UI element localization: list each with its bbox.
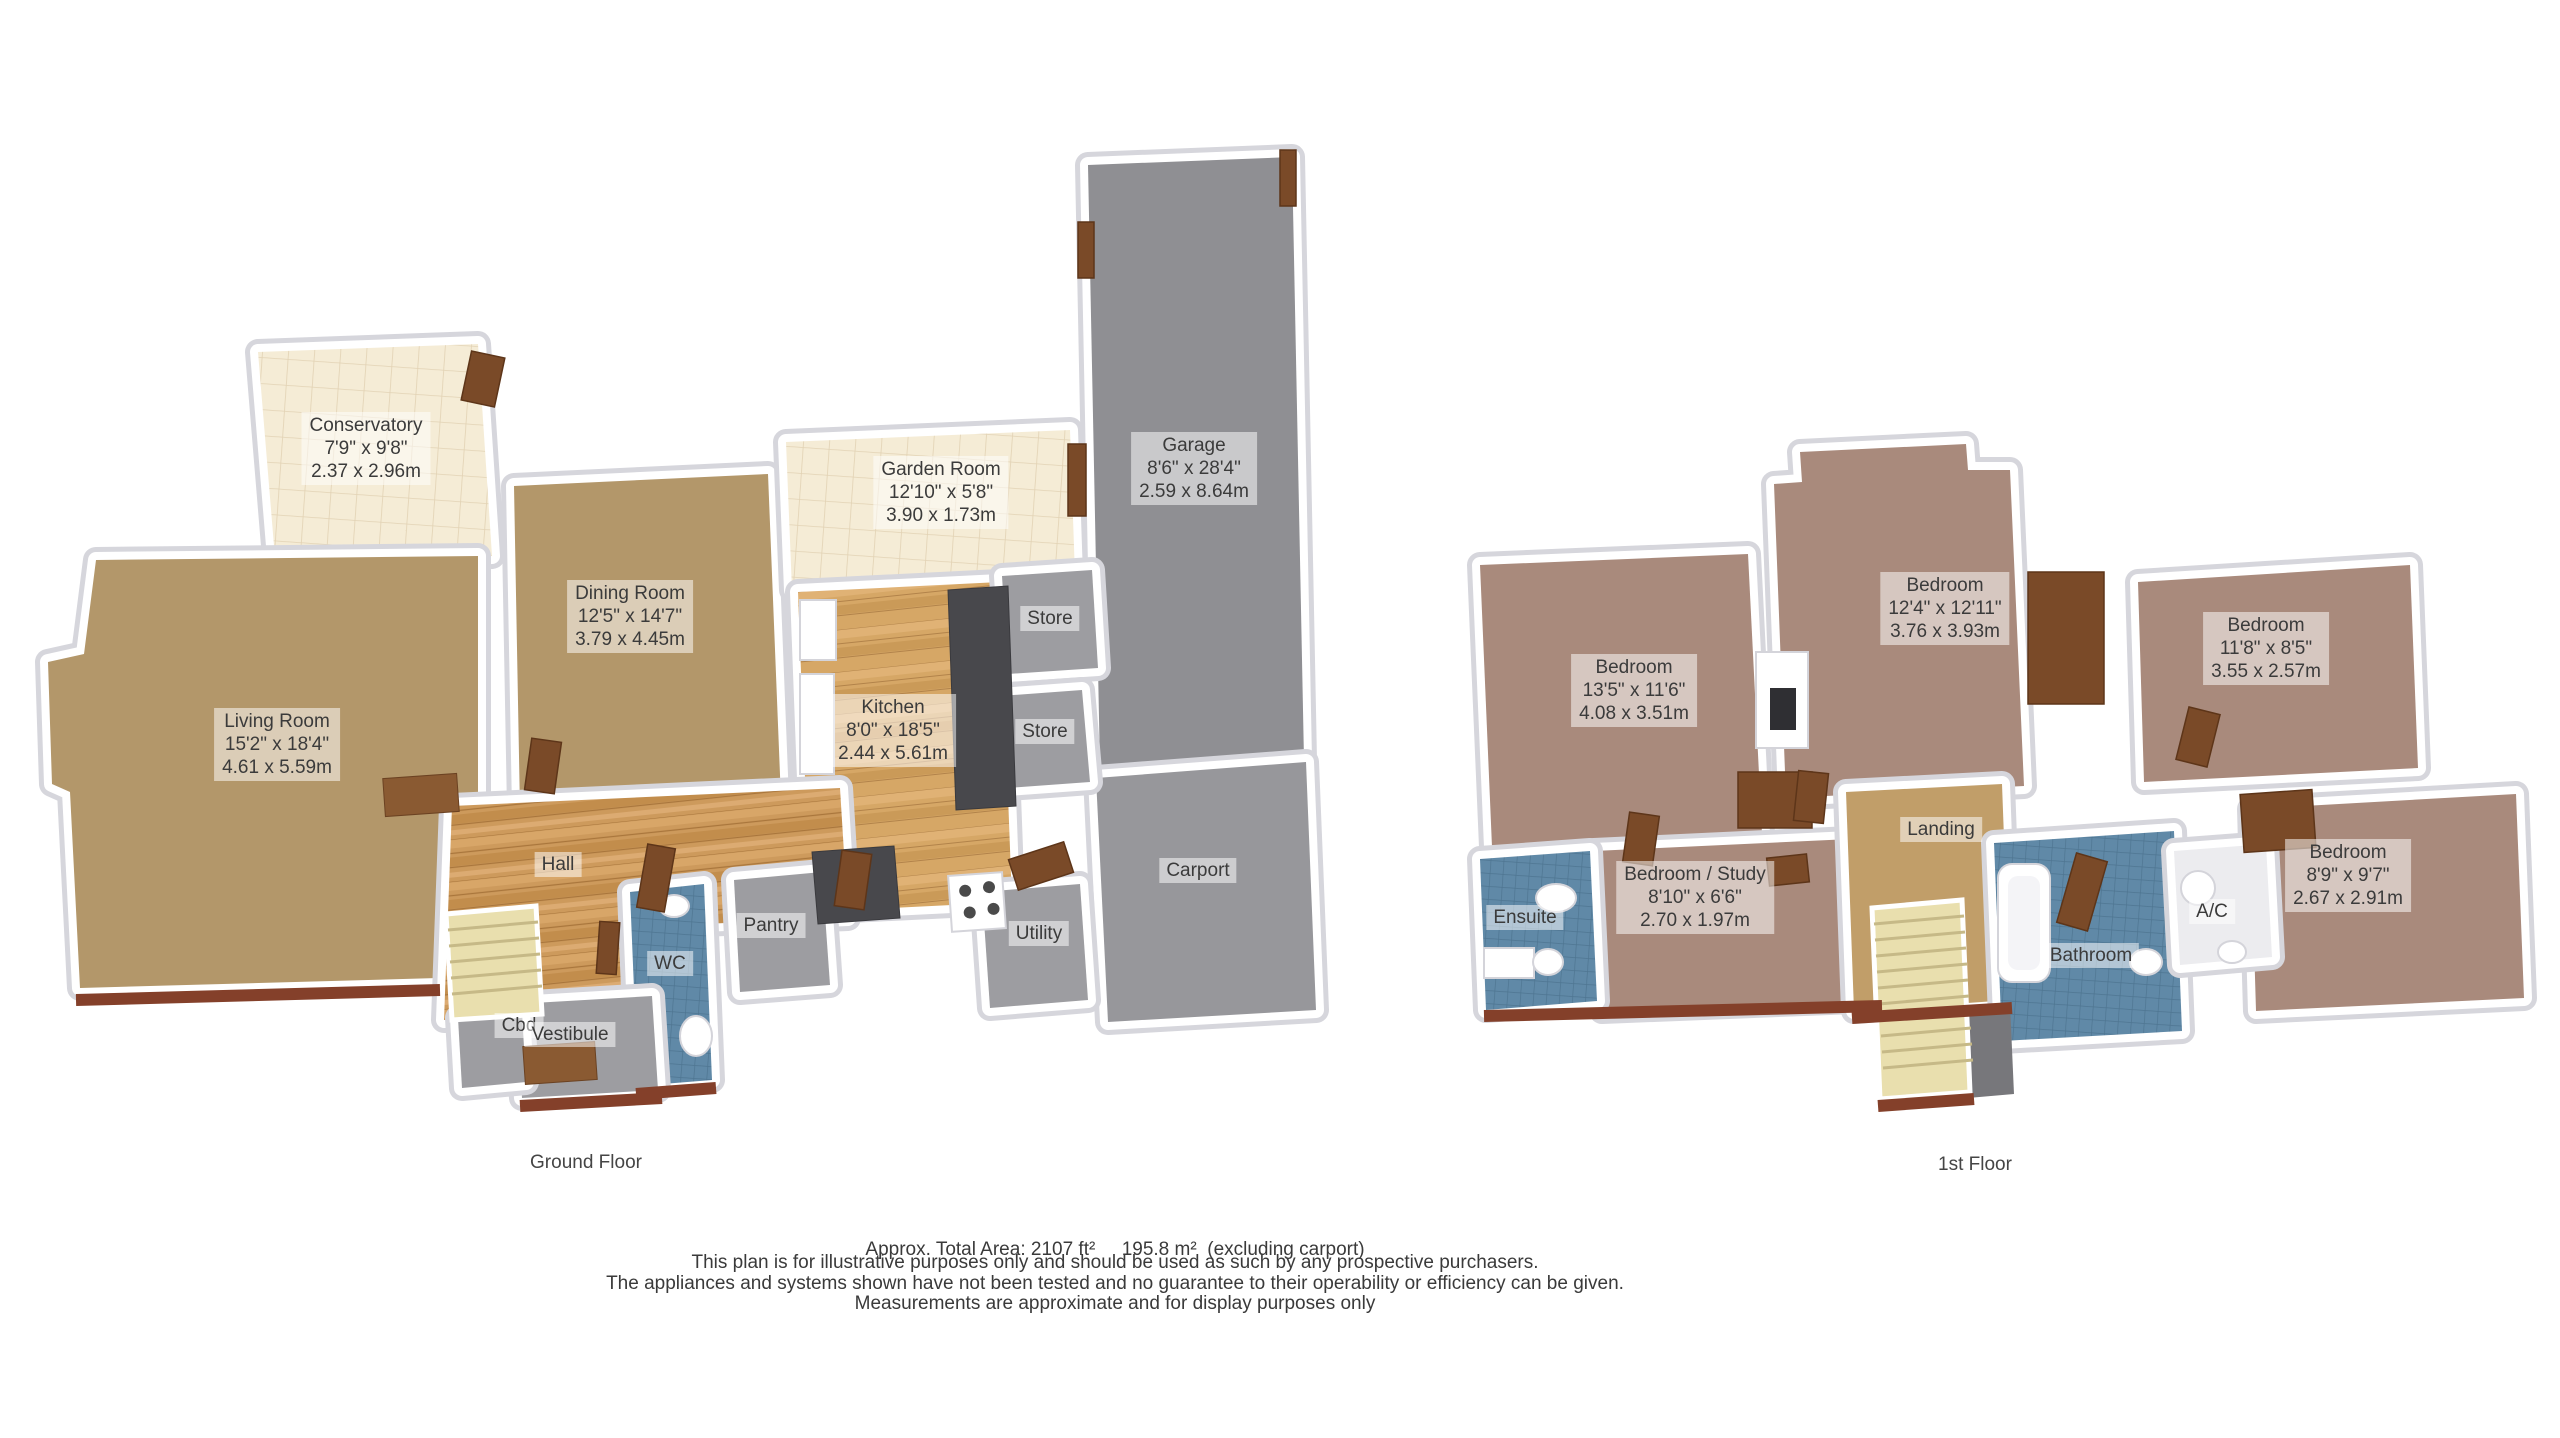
ac-basin [2218,941,2246,963]
room-imperial: 8'10" x 6'6" [1624,886,1766,909]
floorplan-canvas: Conservatory 7'9" x 9'8" 2.37 x 2.96m Li… [0,0,2560,1438]
ground-floor-title: Ground Floor [530,1152,642,1174]
room-imperial: 12'5" x 14'7" [575,605,685,628]
brick-edge [636,1088,716,1094]
label-vestibule: Vestibule [524,1022,615,1047]
room-metric: 4.61 x 5.59m [222,756,332,779]
room-name: Dining Room [575,582,685,605]
label-dining-room: Dining Room 12'5" x 14'7" 3.79 x 4.45m [567,580,693,653]
label-kitchen: Kitchen 8'0" x 18'5" 2.44 x 5.61m [830,694,956,767]
first-floor-title: 1st Floor [1938,1154,2012,1176]
first-floor-plan [1480,444,2524,1106]
room-metric: 2.44 x 5.61m [838,742,948,765]
room-metric: 2.67 x 2.91m [2293,887,2403,910]
room-name: Store [1022,720,1067,743]
label-hall: Hall [535,852,582,877]
room-name: Bedroom / Study [1624,863,1766,886]
brick-edge [1878,1099,1974,1106]
door [1280,150,1296,206]
room-metric: 2.59 x 8.64m [1139,480,1249,503]
room-metric: 3.90 x 1.73m [881,504,1000,527]
room-name: Carport [1166,859,1229,882]
room-imperial: 8'9" x 9'7" [2293,864,2403,887]
room-name: Bedroom [2211,614,2321,637]
door [596,921,620,974]
room-name: Living Room [222,710,332,733]
kitchen-counter-right [948,586,1016,810]
label-garage: Garage 8'6" x 28'4" 2.59 x 8.64m [1131,432,1257,505]
kitchen-appliance [800,600,836,660]
room-name: Bedroom [1579,656,1689,679]
label-bedroom-3: Bedroom 11'8" x 8'5" 3.55 x 2.57m [2203,612,2329,685]
footer-disclaimer-1: This plan is for illustrative purposes o… [691,1252,1538,1273]
room-name: Vestibule [531,1023,608,1046]
ensuite-toilet [1533,949,1563,975]
room-imperial: 7'9" x 9'8" [310,437,423,460]
label-bedroom-study: Bedroom / Study 8'10" x 6'6" 2.70 x 1.97… [1616,861,1774,934]
room-metric: 2.37 x 2.96m [310,460,423,483]
kitchen-unit [800,674,834,774]
room-imperial: 13'5" x 11'6" [1579,679,1689,702]
room-imperial: 15'2" x 18'4" [222,733,332,756]
door [1068,444,1086,516]
room-imperial: 8'0" x 18'5" [838,719,948,742]
door [1793,771,1828,824]
bedroom-1-fireplace [1756,652,1808,748]
label-carport: Carport [1159,858,1236,883]
room-imperial: 11'8" x 8'5" [2211,637,2321,660]
label-ac: A/C [2189,899,2235,924]
wardrobe [2028,572,2104,704]
room-imperial: 8'6" x 28'4" [1139,457,1249,480]
label-bathroom: Bathroom [2043,943,2139,968]
room-name: Store [1027,607,1072,630]
floorplan-drawing [0,0,2560,1438]
label-store-lower: Store [1015,719,1074,744]
label-bedroom-1: Bedroom 13'5" x 11'6" 4.08 x 3.51m [1571,654,1697,727]
label-utility: Utility [1009,921,1069,946]
door [1623,812,1660,866]
label-wc: WC [647,951,693,976]
room-metric: 3.55 x 2.57m [2211,660,2321,683]
door [525,738,562,794]
room-name: Hall [542,853,575,876]
room-name: Garage [1139,434,1249,457]
label-landing: Landing [1900,817,1982,842]
room-name: Bedroom [1888,574,2001,597]
room-imperial: 12'10" x 5'8" [881,481,1000,504]
room-imperial: 12'4" x 12'11" [1888,597,2001,620]
label-store-upper: Store [1020,606,1079,631]
stove [948,872,1006,932]
room-metric: 4.08 x 3.51m [1579,702,1689,725]
door [383,773,459,816]
label-ensuite: Ensuite [1486,905,1563,930]
room-name: Landing [1907,818,1975,841]
room-ensuite-floor [1480,851,1597,1010]
label-bedroom-2: Bedroom 12'4" x 12'11" 3.76 x 3.93m [1880,572,2009,645]
label-pantry: Pantry [737,913,806,938]
room-name: Conservatory [310,414,423,437]
label-bedroom-4: Bedroom 8'9" x 9'7" 2.67 x 2.91m [2285,839,2411,912]
room-metric: 2.70 x 1.97m [1624,909,1766,932]
room-name: Bedroom [2293,841,2403,864]
vestibule-mat [523,1042,597,1085]
room-name: Ensuite [1493,906,1556,929]
ground-stairs [446,906,542,1020]
room-name: Pantry [744,914,799,937]
room-name: Garden Room [881,458,1000,481]
footer-disclaimer-3: Measurements are approximate and for dis… [855,1293,1376,1314]
room-name: Utility [1016,922,1062,945]
room-name: WC [654,952,686,975]
room-name: Bathroom [2050,944,2132,967]
room-metric: 3.79 x 4.45m [575,628,685,651]
ensuite-shower [1484,948,1534,978]
room-metric: 3.76 x 3.93m [1888,620,2001,643]
label-living-room: Living Room 15'2" x 18'4" 4.61 x 5.59m [214,708,340,781]
label-conservatory: Conservatory 7'9" x 9'8" 2.37 x 2.96m [302,412,431,485]
room-name: Kitchen [838,696,948,719]
room-name: A/C [2196,900,2228,923]
footer-disclaimer-2: The appliances and systems shown have no… [606,1273,1624,1294]
wc-toilet [680,1016,712,1056]
room-carport-floor [1096,762,1316,1022]
label-garden-room: Garden Room 12'10" x 5'8" 3.90 x 1.73m [873,456,1008,529]
door [1078,222,1094,278]
